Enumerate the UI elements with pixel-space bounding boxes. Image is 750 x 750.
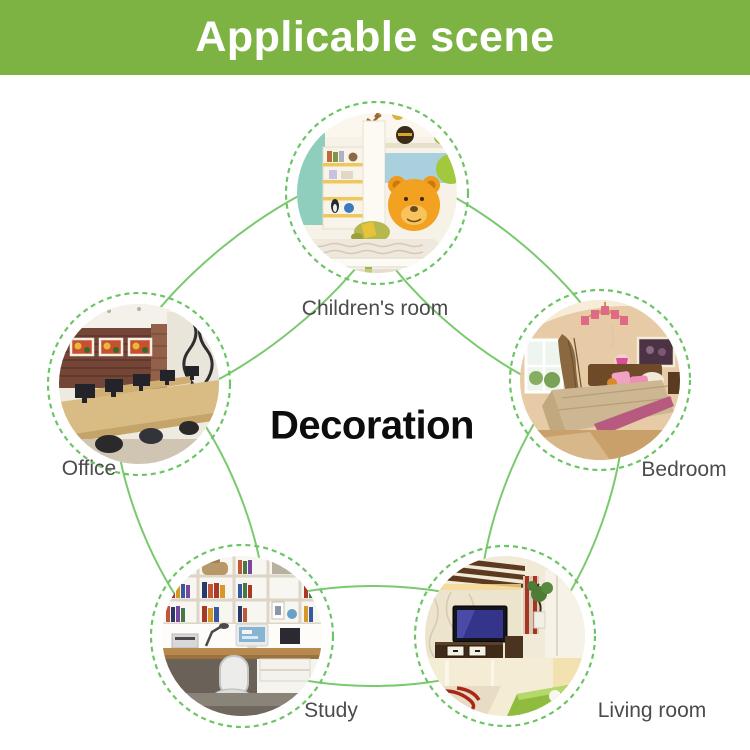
label-children-room: Children's room xyxy=(302,297,448,321)
office-photo xyxy=(59,304,219,464)
bedroom-photo xyxy=(520,300,680,460)
label-office: Office xyxy=(62,457,116,481)
node-office xyxy=(39,284,239,484)
label-study: Study xyxy=(304,699,358,723)
center-title: Decoration xyxy=(270,404,474,449)
label-bedroom: Bedroom xyxy=(641,458,726,482)
node-children-room xyxy=(277,93,477,293)
living-room-photo xyxy=(425,556,585,716)
study-photo xyxy=(162,556,322,716)
node-bedroom xyxy=(500,280,700,480)
children-room-photo xyxy=(297,108,466,273)
label-living-room: Living room xyxy=(598,699,707,723)
node-living-room xyxy=(405,536,605,736)
applicable-scene-page: Applicable scene xyxy=(0,0,750,750)
